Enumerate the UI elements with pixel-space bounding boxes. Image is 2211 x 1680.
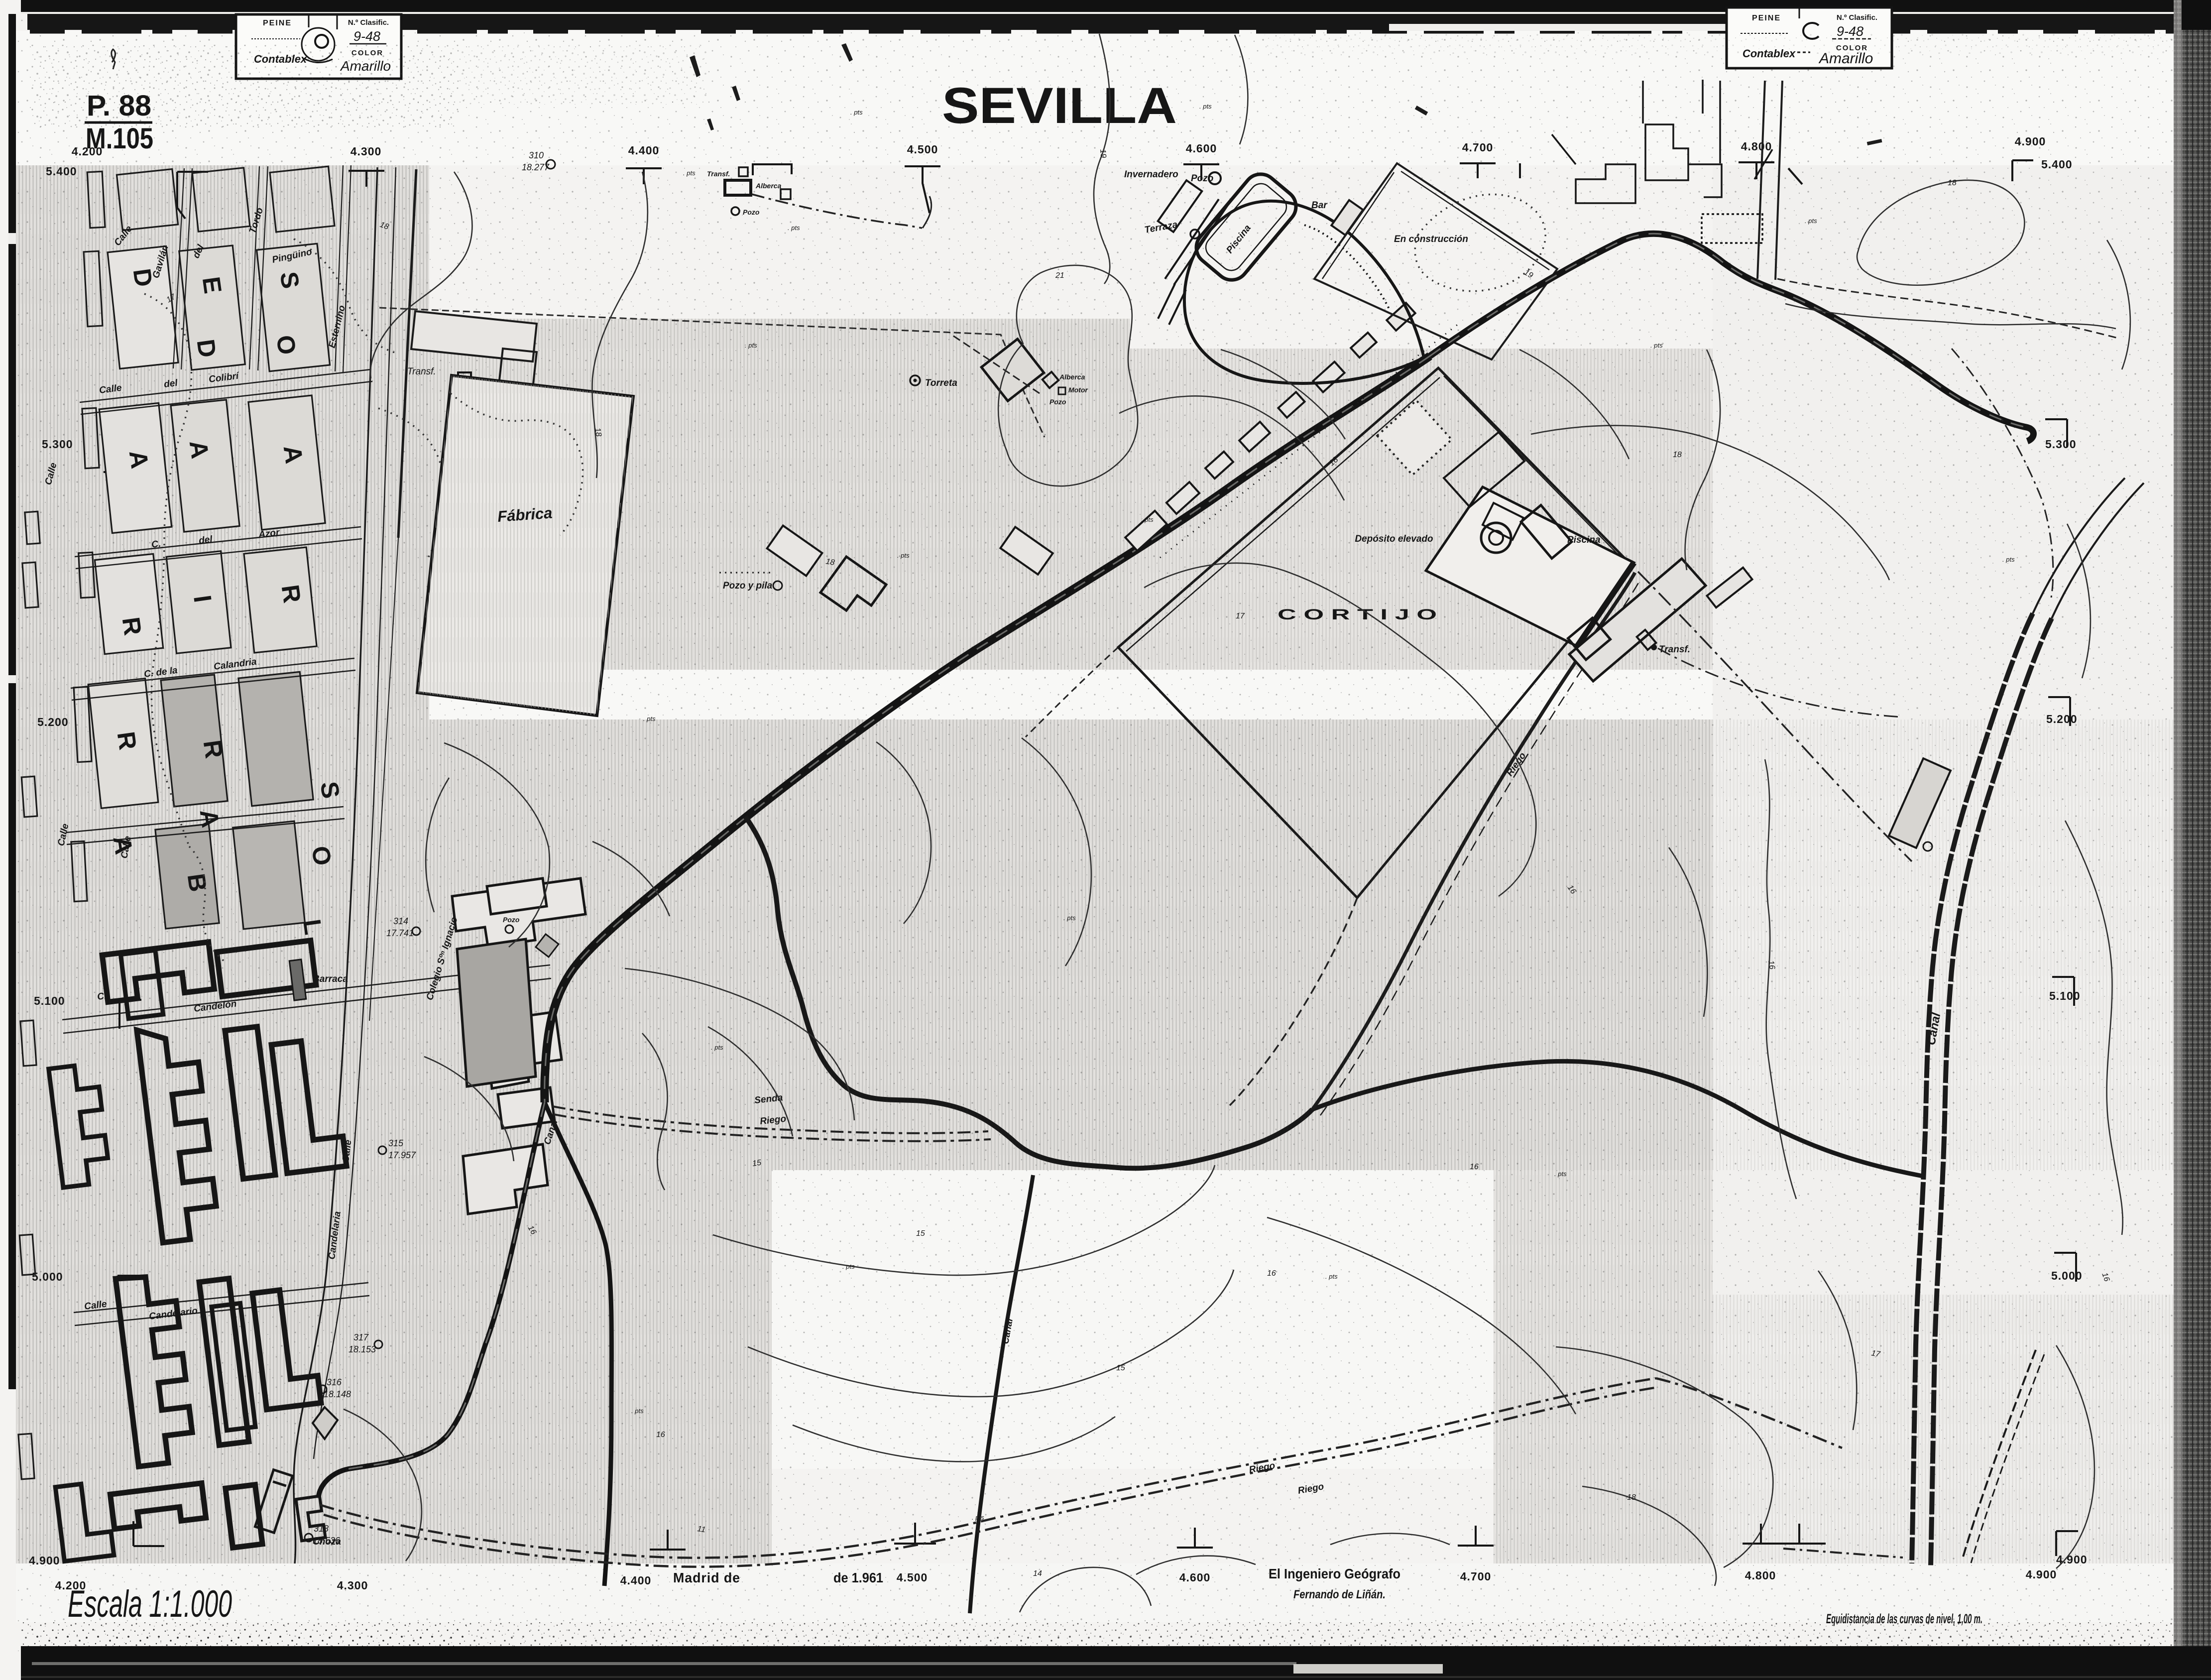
svg-text:Fernando de Liñán.: Fernando de Liñán. [1293,1588,1386,1601]
svg-text:15: 15 [1116,1364,1125,1372]
svg-text:B: B [182,872,212,894]
svg-text:A: A [278,444,308,466]
svg-text:. pts: . pts [850,109,863,116]
svg-text:21: 21 [1055,271,1064,280]
svg-text:317: 317 [353,1332,369,1342]
svg-text:. pts: . pts [1805,217,1817,225]
svg-text:. pts: . pts [1063,914,1076,922]
svg-text:18: 18 [593,427,603,438]
svg-text:4.900: 4.900 [2015,135,2046,148]
svg-text:5.200: 5.200 [37,716,69,728]
svg-text:17: 17 [1236,612,1245,620]
svg-text:Pozo y pila: Pozo y pila [723,581,773,591]
svg-text:18: 18 [1627,1493,1636,1502]
svg-text:R: R [112,730,142,752]
svg-text:. pts: . pts [2002,556,2015,563]
svg-text:9-48: 9-48 [353,29,380,44]
svg-text:. pts: . pts [1199,103,1212,110]
svg-text:. pts: . pts [1554,1170,1567,1178]
svg-text:Depósito elevado: Depósito elevado [1355,534,1433,544]
svg-text:4.800: 4.800 [1745,1569,1776,1582]
svg-text:5.300: 5.300 [2045,438,2077,451]
svg-text:18: 18 [1948,179,1957,187]
svg-text:Bar: Bar [1311,200,1328,211]
svg-text:5.400: 5.400 [2041,158,2073,171]
svg-text:. pts: . pts [1650,342,1663,349]
svg-text:16: 16 [656,1431,665,1439]
svg-text:O: O [271,333,301,356]
svg-text:R: R [276,583,306,605]
svg-text:16: 16 [1766,960,1776,970]
svg-text:4.500: 4.500 [907,143,938,156]
svg-text:4.500: 4.500 [897,1571,928,1584]
svg-text:4.900: 4.900 [29,1554,60,1567]
svg-text:. pts: . pts [897,552,910,559]
svg-text:. pts: . pts [683,169,696,177]
svg-text:Barraca: Barraca [313,974,348,984]
svg-text:PEINE: PEINE [263,19,292,27]
svg-text:En construcción: En construcción [1394,234,1468,244]
svg-text:Pozo: Pozo [503,916,520,924]
svg-text:Invernadero: Invernadero [1124,169,1178,180]
svg-text:18: 18 [1673,451,1682,459]
svg-text:N.º Clasific.: N.º Clasific. [348,18,389,27]
svg-text:Piscina: Piscina [1567,535,1601,545]
svg-text:del: del [163,378,179,390]
svg-text:4.400: 4.400 [620,1574,652,1587]
svg-text:Pozo: Pozo [1049,398,1066,406]
svg-text:4.300: 4.300 [337,1579,368,1592]
svg-text:4.600: 4.600 [1186,142,1217,155]
svg-text:A: A [124,449,154,471]
svg-text:. pts: . pts [711,1044,723,1051]
svg-text:11: 11 [697,1525,706,1534]
svg-text:C O R T I J O: C O R T I J O [1278,606,1437,623]
svg-text:. pts: . pts [631,1407,644,1415]
svg-text:4.400: 4.400 [628,144,660,157]
svg-text:PEINE: PEINE [1752,14,1781,22]
svg-text:El Ingeniero Geógrafo: El Ingeniero Geógrafo [1269,1566,1400,1581]
svg-text:C.: C. [97,991,107,1002]
svg-text:5.400: 5.400 [46,165,77,178]
svg-text:de 1.961: de 1.961 [833,1570,883,1585]
svg-text:A: A [195,808,225,830]
svg-text:16: 16 [1267,1269,1276,1278]
svg-text:314: 314 [393,916,408,926]
svg-text:17.741: 17.741 [386,928,414,938]
svg-text:A: A [184,439,214,461]
svg-text:310: 310 [529,150,544,160]
svg-text:Motor: Motor [1068,386,1088,394]
svg-text:5.300: 5.300 [42,438,73,451]
svg-text:4.700: 4.700 [1462,141,1494,154]
svg-text:. pts: . pts [972,1514,984,1521]
svg-text:D: D [192,338,222,360]
svg-text:C.: C. [151,539,161,550]
svg-text:5.100: 5.100 [2049,989,2081,1002]
svg-text:Pozo: Pozo [743,208,760,216]
svg-text:Alberca: Alberca [755,182,782,190]
svg-text:Madrid de: Madrid de [673,1570,740,1585]
svg-text:18: 18 [825,557,835,567]
svg-text:Transf.: Transf. [707,170,730,178]
svg-text:4.200: 4.200 [72,145,103,158]
svg-text:Equidistancia de las curvas d: Equidistancia de las curvas de nivel, 1,… [1826,1611,1982,1626]
svg-text:4.800: 4.800 [1741,140,1772,153]
svg-text:15: 15 [752,1159,762,1168]
svg-text:14: 14 [1033,1569,1042,1578]
svg-text:Torreta: Torreta [925,378,957,388]
svg-text:4.700: 4.700 [1460,1570,1492,1583]
svg-text:5.000: 5.000 [2051,1269,2083,1282]
svg-text:. pts: . pts [788,224,800,232]
svg-text:Escala 1:1.000: Escala 1:1.000 [68,1583,232,1625]
svg-text:4.300: 4.300 [350,145,382,158]
svg-text:Alberca: Alberca [1059,373,1085,381]
svg-text:19: 19 [1098,149,1107,158]
svg-text:. pts: . pts [745,342,757,349]
svg-text:5.200: 5.200 [2046,713,2078,725]
svg-text:del: del [198,534,214,546]
svg-text:18.148: 18.148 [324,1389,351,1399]
svg-text:. pts: . pts [1141,516,1154,523]
svg-text:Transf.: Transf. [407,366,436,377]
svg-text:18.277: 18.277 [522,162,550,172]
svg-text:5.000: 5.000 [32,1270,63,1283]
svg-text:R: R [117,615,147,637]
svg-text:4.600: 4.600 [1179,1571,1211,1584]
svg-text:18.153: 18.153 [349,1344,376,1354]
svg-text:SEVILLA: SEVILLA [942,77,1177,134]
svg-text:R: R [198,738,228,760]
svg-text:16: 16 [1470,1163,1479,1171]
svg-text:4.900: 4.900 [2026,1568,2057,1581]
svg-text:15: 15 [916,1229,925,1238]
svg-text:. pts: . pts [643,715,656,722]
svg-text:N.º Clasific.: N.º Clasific. [1837,13,1877,22]
svg-text:316: 316 [327,1377,342,1387]
svg-text:5.100: 5.100 [34,994,65,1007]
svg-text:. pts: . pts [842,1263,855,1270]
svg-text:17.957: 17.957 [388,1150,416,1160]
svg-text:. pts: . pts [1325,1273,1338,1280]
svg-text:315: 315 [388,1138,404,1148]
svg-text:Transf.: Transf. [1659,644,1690,655]
svg-text:O: O [306,844,337,867]
